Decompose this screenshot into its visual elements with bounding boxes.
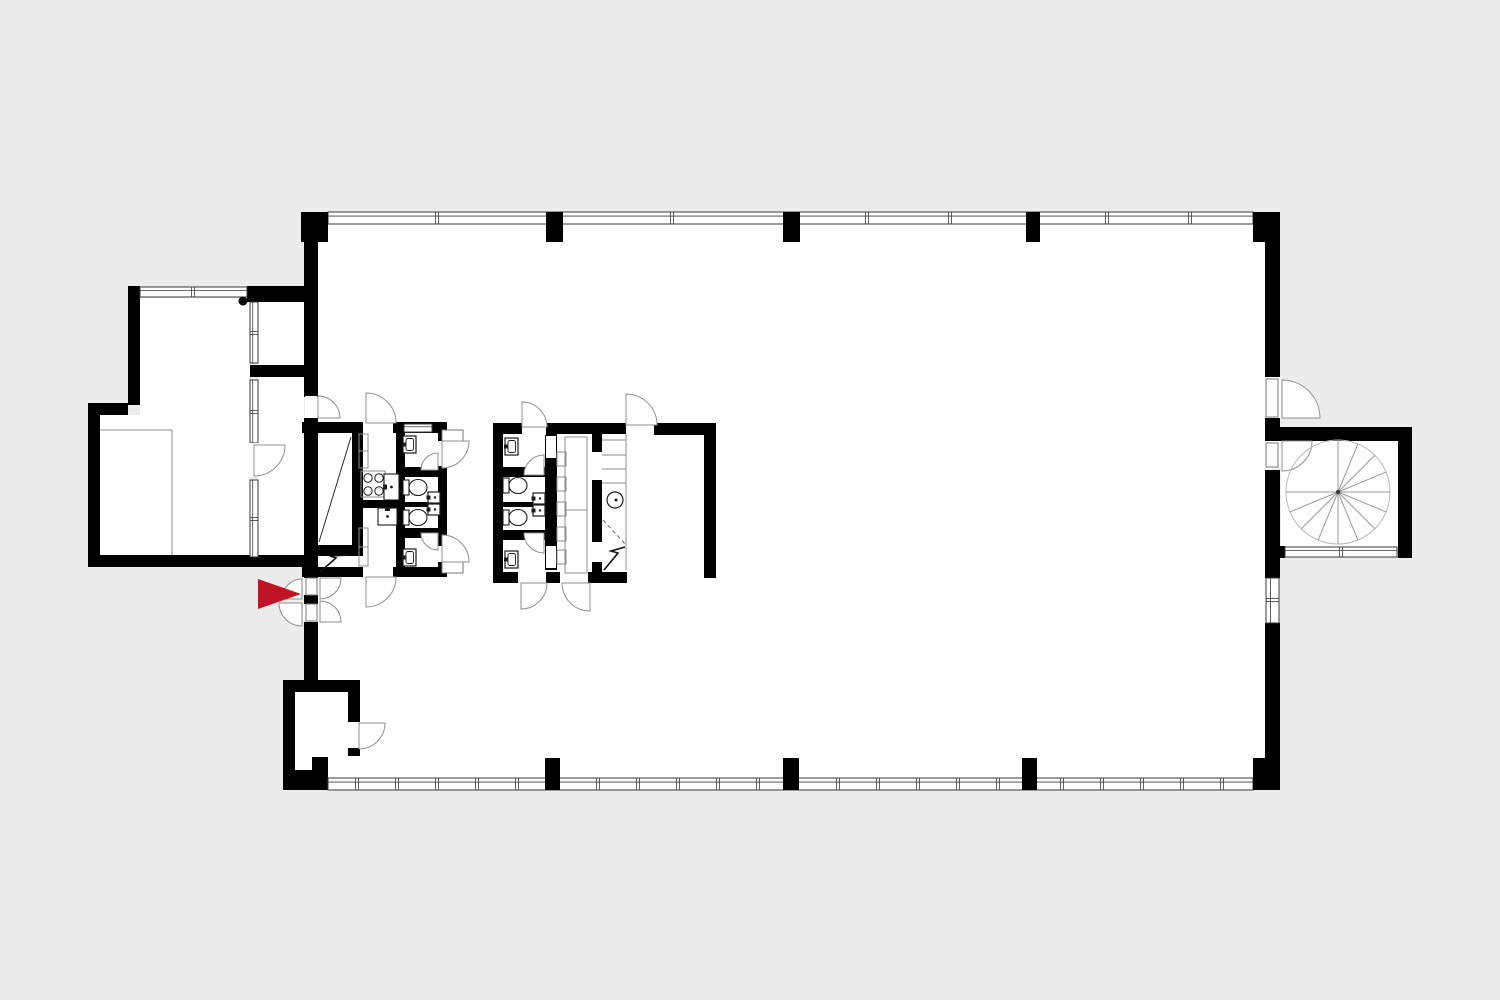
sink-icon [504, 438, 518, 455]
wall-segment [1265, 546, 1285, 558]
window-frame [250, 302, 258, 363]
wall-segment [592, 562, 602, 572]
room-annex-room [140, 298, 250, 556]
wall-segment [546, 572, 560, 583]
door-opening [546, 436, 556, 458]
toilet-bowl [409, 480, 427, 496]
door-opening [348, 722, 360, 748]
floor-plan [0, 0, 1500, 1000]
sink-tap [504, 558, 508, 562]
sink-icon [402, 436, 416, 453]
door-opening [363, 566, 393, 578]
sink-tap [504, 445, 508, 449]
wall-segment [247, 286, 304, 302]
toilet-bowl [509, 478, 527, 494]
wall-segment [704, 435, 716, 578]
column [783, 758, 799, 790]
window [1285, 547, 1397, 557]
wall-segment [88, 555, 318, 567]
wall-segment [588, 572, 627, 583]
toilet-tank [403, 480, 409, 495]
hand-sink-tap [532, 509, 536, 513]
door-opening [546, 546, 556, 568]
wall-segment [304, 622, 318, 680]
wall-segment [592, 434, 602, 452]
hand-sink-drain [539, 497, 541, 499]
wall-segment [250, 365, 304, 377]
column [1253, 212, 1280, 242]
room-annex-subroom [100, 415, 140, 556]
hand-sink-tap [532, 497, 536, 501]
door-opening [518, 571, 546, 584]
wall-segment [1398, 546, 1412, 558]
wall-segment [1265, 470, 1280, 578]
sink-basin [406, 439, 414, 451]
wall-segment [313, 545, 363, 556]
hand-sink-tap [427, 496, 431, 500]
wall-segment [1280, 427, 1412, 441]
window-frame [140, 287, 247, 297]
service-point-dot [239, 297, 248, 306]
column [301, 212, 328, 242]
sink-tap [402, 443, 406, 447]
toilet-tank [403, 510, 409, 525]
window [404, 424, 432, 432]
wall-segment [592, 480, 602, 542]
wall-segment [546, 423, 626, 434]
wall-segment [1265, 417, 1280, 443]
window [250, 380, 258, 443]
toilet-bowl [409, 510, 427, 526]
hand-sink-icon [427, 504, 441, 515]
window-frame [250, 380, 258, 443]
column [545, 758, 560, 790]
wall-segment [363, 500, 396, 508]
hand-sink-icon [532, 493, 546, 504]
window-frame [1266, 578, 1279, 623]
wall-segment [348, 680, 360, 722]
hand-sink-drain [434, 508, 436, 510]
hand-sink-tap [427, 508, 431, 512]
door-leaf [306, 604, 317, 621]
door-leaf [442, 562, 463, 573]
toilet-icon [403, 510, 427, 526]
window-frame [1285, 547, 1397, 557]
hand-sink-drain [434, 496, 436, 498]
wall-segment [654, 423, 716, 435]
window-frame [250, 480, 258, 557]
wall-segment [283, 770, 328, 790]
wall-segment [312, 757, 328, 771]
floor-plan-svg [0, 0, 1500, 1000]
column [546, 212, 563, 242]
window [250, 480, 258, 557]
sink-icon [504, 551, 518, 568]
kitchen-sink-icon [378, 507, 397, 525]
door-opening [305, 396, 317, 418]
window [1266, 578, 1279, 623]
column [1026, 212, 1040, 242]
wall-segment [128, 286, 140, 405]
sink-tap [402, 556, 406, 560]
round-basin-icon [607, 492, 623, 508]
door-leaf [306, 578, 317, 595]
wall-segment [302, 567, 363, 577]
column [1253, 758, 1280, 790]
wall-segment [1265, 242, 1280, 377]
wall-segment [88, 403, 100, 567]
toilet-icon [403, 480, 427, 496]
wall-segment [493, 572, 518, 583]
toilet-tank [503, 478, 509, 493]
kitchen-sink-drain [390, 486, 393, 489]
wall-segment [1398, 427, 1412, 558]
toilet-tank [503, 510, 509, 525]
window [140, 287, 247, 297]
kitchen-sink-tap [385, 507, 390, 511]
wall-segment [1265, 623, 1280, 758]
hand-sink-icon [427, 492, 441, 503]
sink-basin [508, 441, 516, 453]
toilet-icon [503, 478, 527, 494]
door-leaf [442, 430, 463, 441]
door-leaf [1266, 443, 1278, 467]
kitchen-sink-icon [383, 474, 399, 500]
window [250, 302, 258, 363]
window-frame [404, 424, 432, 432]
sink-basin [406, 552, 414, 564]
wall-segment [493, 502, 537, 507]
hand-sink-icon [532, 505, 546, 516]
toilet-bowl [509, 510, 527, 526]
room-vestibule [258, 302, 304, 366]
kitchen-sink-tap [383, 485, 387, 490]
wall-segment [348, 748, 360, 756]
spiral-stair-newel [1336, 490, 1340, 494]
sink-basin [508, 554, 516, 566]
toilet-icon [503, 510, 527, 526]
column [783, 212, 800, 242]
wall-segment [302, 422, 363, 433]
room-main-hall [310, 220, 1272, 782]
hand-sink-drain [539, 509, 541, 511]
sink-icon [402, 549, 416, 566]
round-basin-drain [615, 499, 618, 502]
kitchen-sink-drain [386, 515, 389, 518]
door-leaf [1266, 379, 1278, 417]
wall-segment [304, 242, 318, 397]
column [1022, 758, 1037, 790]
